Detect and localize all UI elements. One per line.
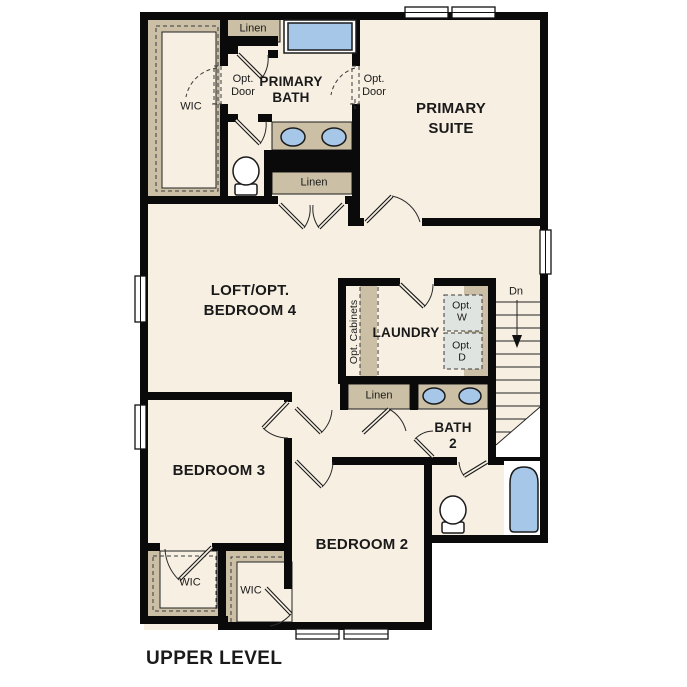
window-left-loft: [135, 276, 146, 322]
opt-dryer-label: Opt. D: [452, 340, 472, 365]
bath2-bathtub-icon: [504, 461, 540, 535]
window-bottom-2: [344, 629, 388, 639]
wic-primary-label: WIC: [180, 101, 201, 114]
stairs-down-label: Dn: [509, 286, 523, 299]
window-bottom-1: [296, 629, 339, 639]
window-left-bedroom3: [135, 405, 146, 449]
linen-top-label: Linen: [240, 23, 267, 36]
linen-primary-label: Linen: [301, 177, 328, 190]
opt-door-left-label: Opt. Door: [231, 73, 255, 99]
shower-block: [272, 150, 354, 172]
page-title: UPPER LEVEL: [146, 648, 282, 670]
bedroom2-label: BEDROOM 2: [316, 535, 409, 555]
opt-washer-label: Opt. W: [452, 300, 472, 325]
primary-bath-label: PRIMARY BATH: [259, 74, 322, 106]
window-top-1: [405, 7, 448, 18]
bath2-toilet-icon: [440, 496, 466, 533]
linen-hall-label: Linen: [366, 390, 393, 403]
loft-label: LOFT/OPT. BEDROOM 4: [204, 281, 297, 322]
wic-bedroom2-label: WIC: [240, 585, 261, 598]
primary-bathtub-icon: [284, 20, 356, 53]
laundry-label: LAUNDRY: [373, 325, 440, 341]
opt-cabinets-label: Opt. Cabinets: [348, 300, 360, 364]
bath2-label: BATH 2: [434, 420, 471, 452]
window-right-stairs: [540, 230, 551, 274]
primary-toilet-icon: [233, 157, 259, 195]
wic-bedroom3-label: WIC: [179, 577, 200, 590]
primary-suite-label: PRIMARY SUITE: [416, 99, 486, 140]
bedroom3-label: BEDROOM 3: [173, 461, 266, 481]
floorplan-drawing: [0, 0, 687, 687]
opt-door-right-label: Opt. Door: [362, 73, 386, 99]
floorplan-upper-level: Linen WIC Opt. Door PRIMARY BATH Opt. Do…: [0, 0, 687, 687]
window-top-2: [452, 7, 495, 18]
